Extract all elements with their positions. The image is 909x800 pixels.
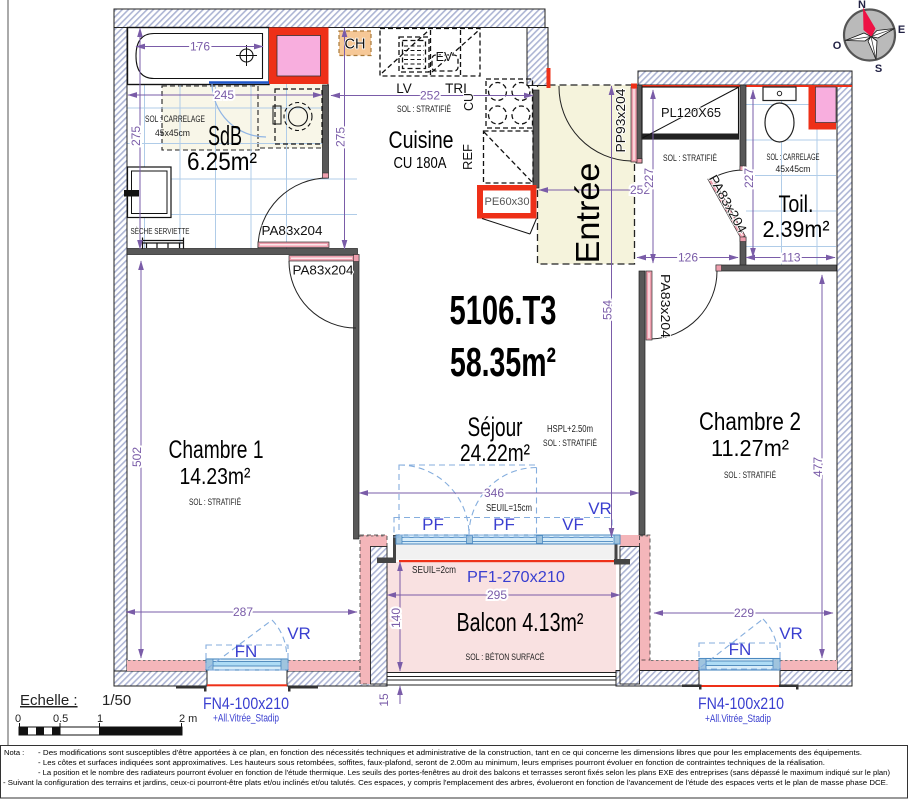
svg-text:Chambre 1: Chambre 1 bbox=[169, 436, 264, 464]
svg-text:FN4-100x210: FN4-100x210 bbox=[698, 694, 784, 713]
svg-text:PL120X65: PL120X65 bbox=[661, 105, 721, 120]
svg-text:24.22m²: 24.22m² bbox=[460, 440, 530, 467]
svg-text:252: 252 bbox=[420, 89, 440, 103]
svg-text:SEUIL=15cm: SEUIL=15cm bbox=[486, 503, 532, 514]
svg-text:227: 227 bbox=[642, 168, 656, 188]
svg-text:SOL : STRATIFIÉ: SOL : STRATIFIÉ bbox=[543, 438, 597, 448]
svg-text:O: O bbox=[833, 40, 842, 52]
svg-text:Nota :: Nota : bbox=[4, 748, 24, 757]
svg-text:Chambre 2: Chambre 2 bbox=[699, 408, 801, 436]
svg-text:VR: VR bbox=[588, 499, 612, 518]
svg-text:477: 477 bbox=[811, 457, 825, 477]
svg-text:SdB: SdB bbox=[208, 120, 242, 151]
svg-text:SÈCHE SERVIETTE: SÈCHE SERVIETTE bbox=[131, 227, 190, 236]
svg-text:Cuisine: Cuisine bbox=[389, 127, 454, 154]
svg-text:PF1-270x210: PF1-270x210 bbox=[467, 569, 565, 586]
svg-text:FN: FN bbox=[235, 642, 258, 661]
svg-text:VR: VR bbox=[779, 624, 803, 643]
svg-text:Balcon 4.13m²: Balcon 4.13m² bbox=[457, 607, 584, 637]
svg-text:126: 126 bbox=[678, 251, 698, 265]
svg-text:Echelle :: Echelle : bbox=[20, 692, 78, 709]
svg-text:SOL : STRATIFIÉ: SOL : STRATIFIÉ bbox=[724, 470, 776, 480]
svg-text:SEUIL=2cm: SEUIL=2cm bbox=[412, 565, 456, 576]
svg-text:FN4-100x210: FN4-100x210 bbox=[203, 694, 289, 713]
svg-text:0.5: 0.5 bbox=[53, 713, 68, 725]
svg-text:CU 180A: CU 180A bbox=[394, 155, 447, 172]
svg-text:140: 140 bbox=[389, 608, 403, 628]
svg-text:15: 15 bbox=[377, 693, 391, 707]
svg-text:PA83x204: PA83x204 bbox=[658, 274, 673, 338]
svg-text:45x45cm: 45x45cm bbox=[155, 128, 190, 138]
svg-text:- Des modifications sont susce: - Des modifications sont susceptibles d'… bbox=[38, 748, 862, 757]
svg-text:CU: CU bbox=[462, 93, 476, 111]
svg-text:295: 295 bbox=[487, 588, 507, 602]
svg-text:SOL : CARRELAGE: SOL : CARRELAGE bbox=[767, 152, 820, 162]
svg-text:1: 1 bbox=[97, 713, 103, 725]
svg-text:SOL : STRATIFIÉ: SOL : STRATIFIÉ bbox=[663, 153, 717, 163]
svg-text:502: 502 bbox=[130, 447, 144, 467]
svg-text:S: S bbox=[875, 63, 882, 75]
svg-text:PP93x204: PP93x204 bbox=[613, 89, 628, 153]
svg-text:- Les côtes et surfaces indiqu: - Les côtes et surfaces indiquées sont a… bbox=[38, 758, 825, 767]
svg-text:LV: LV bbox=[396, 81, 412, 96]
svg-text:PF: PF bbox=[493, 515, 515, 534]
svg-text:Séjour: Séjour bbox=[468, 412, 523, 442]
svg-text:SOL : STRATIFIÉ: SOL : STRATIFIÉ bbox=[397, 104, 451, 114]
svg-text:2.39m²: 2.39m² bbox=[763, 216, 830, 242]
svg-text:N: N bbox=[858, 0, 866, 11]
svg-text:VR: VR bbox=[287, 624, 311, 643]
svg-text:E: E bbox=[898, 24, 905, 36]
svg-text:PA83x204: PA83x204 bbox=[262, 223, 323, 238]
svg-text:SOL : CARRELAGE: SOL : CARRELAGE bbox=[145, 114, 205, 124]
svg-text:14.23m²: 14.23m² bbox=[180, 463, 251, 489]
svg-text:PF: PF bbox=[422, 515, 444, 534]
svg-text:- La position et le nombre des: - La position et le nombre des radiateur… bbox=[38, 768, 890, 777]
svg-text:113: 113 bbox=[781, 251, 800, 265]
svg-text:275: 275 bbox=[129, 126, 143, 146]
svg-text:5106.T3: 5106.T3 bbox=[450, 287, 557, 333]
svg-text:229: 229 bbox=[734, 606, 754, 620]
svg-text:EV: EV bbox=[436, 50, 453, 64]
svg-text:PE60x30: PE60x30 bbox=[485, 196, 530, 208]
svg-text:45x45cm: 45x45cm bbox=[776, 164, 811, 174]
svg-text:SOL : STRATIFIÉ: SOL : STRATIFIÉ bbox=[189, 497, 241, 507]
svg-text:245: 245 bbox=[214, 88, 234, 102]
svg-text:FN: FN bbox=[729, 640, 752, 659]
svg-text:- Suivant la configuration des: - Suivant la configuration des terrains … bbox=[3, 778, 888, 787]
svg-text:227: 227 bbox=[742, 168, 756, 188]
svg-text:REF: REF bbox=[460, 144, 475, 170]
svg-text:PA83x204: PA83x204 bbox=[293, 263, 354, 278]
svg-text:CH: CH bbox=[345, 37, 366, 53]
svg-text:287: 287 bbox=[233, 605, 253, 619]
svg-text:275: 275 bbox=[334, 127, 348, 147]
svg-text:346: 346 bbox=[484, 486, 504, 500]
svg-text:SOL : BÉTON SURFACÉ: SOL : BÉTON SURFACÉ bbox=[466, 652, 545, 663]
svg-text:58.35m²: 58.35m² bbox=[450, 339, 556, 385]
svg-text:Toil.: Toil. bbox=[779, 191, 814, 218]
svg-text:Entrée: Entrée bbox=[569, 163, 606, 264]
svg-text:HSPL+2.50m: HSPL+2.50m bbox=[547, 424, 593, 435]
svg-text:11.27m²: 11.27m² bbox=[711, 435, 789, 461]
svg-text:176: 176 bbox=[190, 40, 210, 54]
svg-text:1/50: 1/50 bbox=[102, 692, 131, 709]
svg-text:554: 554 bbox=[601, 300, 615, 320]
svg-text:0: 0 bbox=[15, 713, 21, 725]
svg-text:+All.Vitrée_Stadip: +All.Vitrée_Stadip bbox=[213, 713, 279, 725]
svg-text:6.25m²: 6.25m² bbox=[187, 148, 257, 176]
svg-text:VF: VF bbox=[562, 515, 584, 534]
svg-text:+All.Vitrée_Stadip: +All.Vitrée_Stadip bbox=[705, 713, 771, 725]
